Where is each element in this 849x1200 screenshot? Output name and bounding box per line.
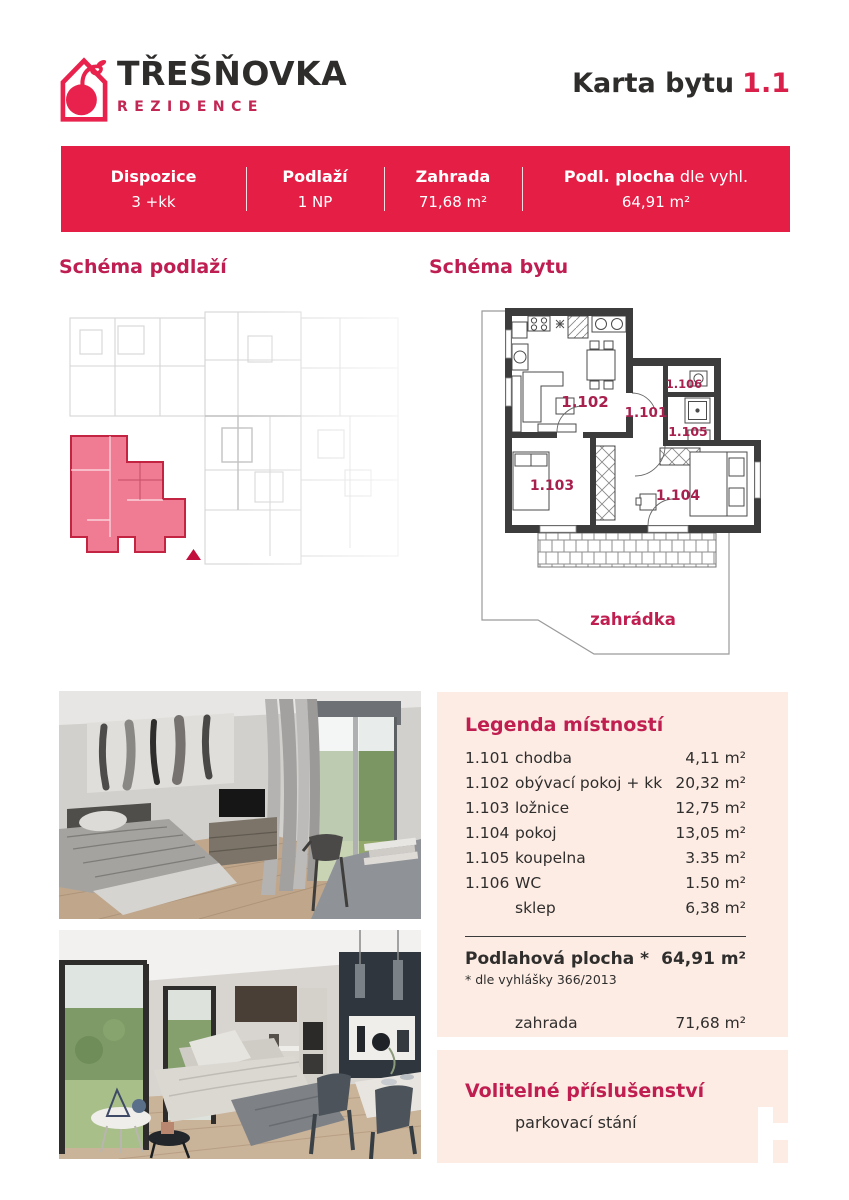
banner-col-zahrada: Zahrada 71,68 m² [384,167,522,211]
floor-schema-title: Schéma podlaží [59,256,227,278]
garden-area-row: zahrada 71,68 m² [465,1014,746,1032]
options-panel: Volitelné příslušenství parkovací stání [437,1050,788,1163]
brand-block: TŘEŠŇOVKA REZIDENCE [117,57,347,115]
room-name: pokoj [515,824,675,842]
banner-value: 64,91 m² [522,193,790,211]
entrance-triangle-marker [186,549,201,560]
brand-name: TŘEŠŇOVKA [117,57,347,90]
legend-row: 1.103 ložnice 12,75 m² [465,799,746,824]
room-name: sklep [515,899,685,917]
room-name: obývací pokoj + kk [515,774,675,792]
room-id: 1.104 [465,824,515,842]
room-label-1106: 1.106 [666,377,702,391]
unit-schema-plan: 1.102 1.101 1.106 1.105 1.103 1.104 zahr… [440,290,805,675]
room-id: 1.102 [465,774,515,792]
room-label-1101: 1.101 [625,405,668,421]
banner-label: Zahrada [384,167,522,186]
floor-area-total: Podlahová plocha * 64,91 m² [465,949,746,969]
banner-value: 71,68 m² [384,193,522,211]
legend-row: 1.105 koupelna 3.35 m² [465,849,746,874]
room-name: ložnice [515,799,675,817]
legend-row: 1.104 pokoj 13,05 m² [465,824,746,849]
unit-schema-title: Schéma bytu [429,256,568,278]
room-label-1102: 1.102 [561,393,608,411]
options-title: Volitelné příslušenství [465,1080,788,1102]
room-id: 1.101 [465,749,515,767]
apartment-card-page: TŘEŠŇOVKA REZIDENCE Karta bytu1.1 Dispoz… [0,0,849,1200]
room-area: 6,38 m² [685,899,746,917]
banner-col-dispozice: Dispozice 3 +kk [61,167,246,211]
room-name: WC [515,874,685,892]
room-label-1105: 1.105 [668,424,708,439]
room-area: 1.50 m² [685,874,746,892]
banner-value: 1 NP [246,193,384,211]
banner-separator [384,167,385,211]
legend-title: Legenda místností [465,714,746,736]
living-room-photo-art [59,930,421,1159]
total-label: Podlahová plocha * [465,949,661,969]
legend-divider [465,936,746,937]
card-title-label: Karta bytu [572,68,734,99]
room-label-1104: 1.104 [656,488,701,504]
room-id: 1.106 [465,874,515,892]
room-area: 3.35 m² [685,849,746,867]
room-label-1103: 1.103 [530,478,574,494]
legend-panel: Legenda místností 1.101 chodba 4,11 m² 1… [437,692,788,1037]
watermark-knockout [758,1107,773,1163]
options-item: parkovací stání [465,1113,788,1132]
terrace-paving [538,533,716,567]
room-area: 4,11 m² [685,749,746,767]
banner-label: Dispozice [61,167,246,186]
room-area: 20,32 m² [675,774,746,792]
bedroom-photo-art [59,691,421,919]
banner-separator [522,167,523,211]
floor-schema-plan [55,298,405,585]
banner-value: 3 +kk [61,193,246,211]
banner-label: Podl. plocha dle vyhl. [522,167,790,186]
info-banner: Dispozice 3 +kk Podlaží 1 NP Zahrada 71,… [61,146,790,232]
highlighted-unit-polygon [71,436,185,552]
legend-row: 1.102 obývací pokoj + kk 20,32 m² [465,774,746,799]
brand-subtitle: REZIDENCE [117,99,347,115]
watermark-knockout [773,1123,788,1140]
legend-row: sklep 6,38 m² [465,899,746,924]
garden-label: zahrádka [590,610,676,629]
living-room-photo [59,930,421,1159]
banner-col-podl-plocha: Podl. plocha dle vyhl. 64,91 m² [522,167,790,211]
legend-row: 1.101 chodba 4,11 m² [465,749,746,774]
banner-label: Podlaží [246,167,384,186]
garden-value: 71,68 m² [675,1014,746,1032]
cherry-house-logo-icon [58,52,110,124]
room-name: chodba [515,749,685,767]
room-area: 12,75 m² [675,799,746,817]
bedroom-photo [59,691,421,919]
room-id: 1.103 [465,799,515,817]
banner-separator [246,167,247,211]
banner-col-podlazi: Podlaží 1 NP [246,167,384,211]
room-area: 13,05 m² [675,824,746,842]
room-id: 1.105 [465,849,515,867]
unit-number: 1.1 [742,68,790,99]
card-title: Karta bytu1.1 [572,68,790,99]
footnote: * dle vyhlášky 366/2013 [465,972,746,987]
total-value: 64,91 m² [661,949,746,969]
legend-row: 1.106 WC 1.50 m² [465,874,746,899]
garden-name: zahrada [465,1014,675,1032]
room-name: koupelna [515,849,685,867]
